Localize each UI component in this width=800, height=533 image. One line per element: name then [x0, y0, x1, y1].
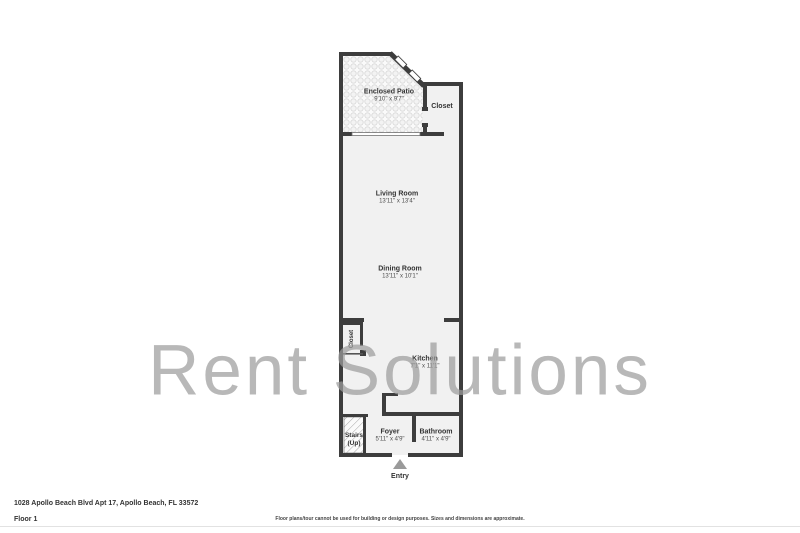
room-label-patio: Enclosed Patio 9'10" x 9'7": [364, 89, 414, 104]
stairs-name-line1: Stairs: [345, 432, 363, 440]
room-label-entry: Entry: [391, 473, 409, 481]
property-address: 1028 Apollo Beach Blvd Apt 17, Apollo Be…: [14, 500, 198, 507]
patio-window: [352, 133, 420, 136]
disclaimer-text: Floor plans/tour cannot be used for buil…: [0, 516, 800, 522]
dining-name: Dining Room: [378, 266, 422, 274]
foyer-name: Foyer: [375, 429, 404, 437]
entry-arrow-icon: [393, 459, 407, 469]
patio-dims: 9'10" x 9'7": [364, 97, 414, 104]
room-label-living: Living Room 13'11" x 13'4": [376, 191, 418, 206]
room-label-stairs: Stairs (Up): [345, 432, 363, 448]
room-label-dining: Dining Room 13'11" x 10'1": [378, 266, 422, 281]
room-label-bathroom: Bathroom 4'11" x 4'9": [419, 429, 452, 444]
bathroom-name: Bathroom: [419, 429, 452, 437]
room-label-foyer: Foyer 5'11" x 4'9": [375, 429, 404, 444]
patio-name: Enclosed Patio: [364, 89, 414, 97]
dining-dims: 13'11" x 10'1": [378, 274, 422, 281]
closet-upper-name: Closet: [431, 103, 452, 111]
floor-plan-page: Enclosed Patio 9'10" x 9'7" Closet Livin…: [0, 0, 800, 533]
watermark: Rent Solutions: [148, 331, 652, 412]
bathroom-dims: 4'11" x 4'9": [419, 437, 452, 444]
room-label-closet-upper: Closet: [431, 103, 452, 111]
stairs-name-line2: (Up): [345, 440, 363, 448]
footer-divider: [0, 526, 800, 527]
entry-name: Entry: [391, 473, 409, 481]
living-name: Living Room: [376, 191, 418, 199]
living-dims: 13'11" x 13'4": [376, 199, 418, 206]
foyer-dims: 5'11" x 4'9": [375, 437, 404, 444]
